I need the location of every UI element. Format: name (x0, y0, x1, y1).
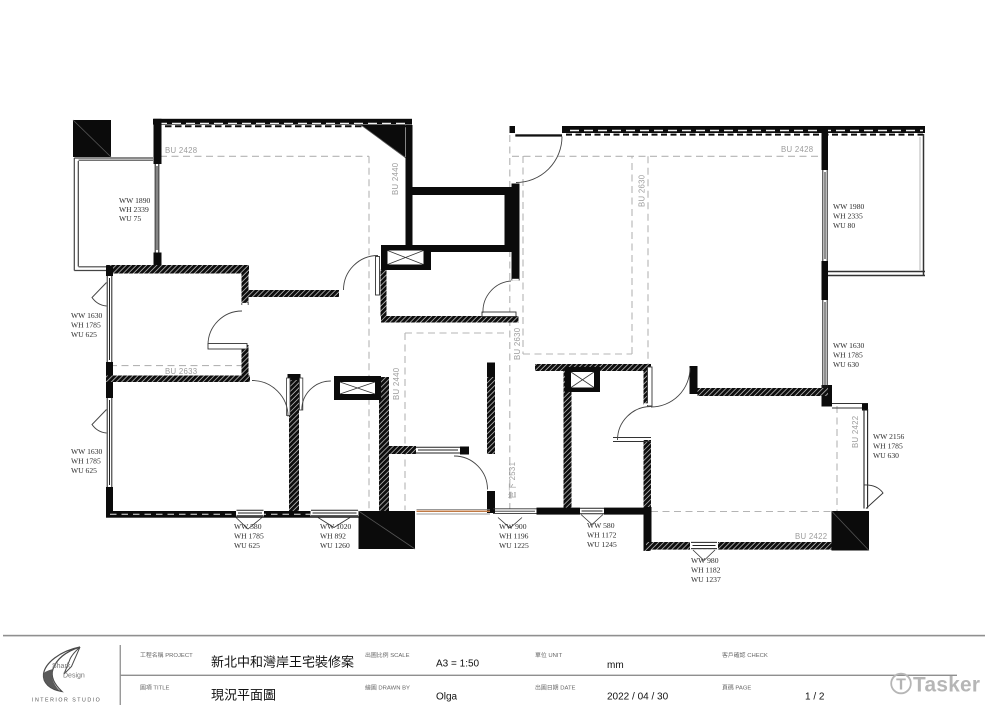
svg-text:單位 UNIT: 單位 UNIT (535, 651, 563, 659)
svg-text:WW 980: WW 980 (691, 556, 719, 565)
svg-text:1 / 2: 1 / 2 (805, 692, 825, 703)
svg-text:WU 75: WU 75 (119, 214, 141, 223)
svg-text:管下 2531: 管下 2531 (507, 462, 517, 499)
svg-text:BU 2422: BU 2422 (795, 532, 827, 541)
svg-text:現況平面圖: 現況平面圖 (211, 688, 276, 703)
svg-text:客戶確認 CHECK: 客戶確認 CHECK (722, 651, 768, 659)
svg-text:工程名稱 PROJECT: 工程名稱 PROJECT (140, 651, 193, 659)
svg-text:Olga: Olga (436, 692, 458, 703)
svg-text:BU 2630: BU 2630 (638, 174, 647, 207)
svg-text:WW 1630: WW 1630 (833, 341, 864, 350)
svg-text:WW 1630: WW 1630 (71, 311, 102, 320)
svg-text:BU 2422: BU 2422 (851, 416, 860, 448)
svg-text:WH 1785: WH 1785 (833, 351, 863, 360)
svg-text:WW 1630: WW 1630 (71, 447, 102, 456)
svg-text:WH 1785: WH 1785 (234, 532, 264, 541)
svg-text:mm: mm (607, 660, 624, 671)
svg-text:WU 80: WU 80 (833, 221, 855, 230)
svg-text:新北中和灣岸王宅裝修案: 新北中和灣岸王宅裝修案 (211, 655, 354, 670)
svg-text:WW 580: WW 580 (587, 521, 615, 530)
svg-text:BU 2440: BU 2440 (391, 162, 400, 195)
svg-text:WW 1020: WW 1020 (320, 522, 351, 531)
svg-text:WW 1980: WW 1980 (833, 202, 864, 211)
svg-text:WH 1785: WH 1785 (71, 321, 101, 330)
svg-text:頁碼 PAGE: 頁碼 PAGE (722, 685, 751, 692)
svg-text:Design: Design (63, 673, 85, 680)
svg-text:WH 892: WH 892 (320, 532, 346, 541)
svg-text:圖項 TITLE: 圖項 TITLE (140, 685, 170, 692)
svg-text:WH 1172: WH 1172 (587, 531, 617, 540)
svg-text:WU 625: WU 625 (234, 541, 260, 550)
svg-text:出圖日期 DATE: 出圖日期 DATE (535, 684, 576, 692)
svg-text:2022 / 04 / 30: 2022 / 04 / 30 (607, 692, 669, 703)
svg-text:WU 1237: WU 1237 (691, 575, 721, 584)
svg-text:WU 625: WU 625 (71, 466, 97, 475)
svg-text:繪圖 DRAWN BY: 繪圖 DRAWN BY (365, 684, 410, 692)
svg-text:Tasker: Tasker (913, 674, 980, 697)
svg-text:WW 580: WW 580 (234, 522, 262, 531)
svg-text:WH 1785: WH 1785 (873, 442, 903, 451)
svg-text:WU 1225: WU 1225 (499, 541, 529, 550)
svg-text:INTERIOR STUDIO: INTERIOR STUDIO (32, 698, 101, 704)
svg-text:WH 1196: WH 1196 (499, 532, 529, 541)
svg-text:WH 2335: WH 2335 (833, 212, 863, 221)
svg-text:WU 630: WU 630 (873, 451, 899, 460)
svg-text:WU 1260: WU 1260 (320, 541, 350, 550)
svg-text:T: T (896, 677, 906, 694)
svg-text:BU 2440: BU 2440 (392, 367, 401, 400)
svg-text:WU 625: WU 625 (71, 330, 97, 339)
svg-text:BU 2428: BU 2428 (781, 145, 813, 154)
svg-text:WH 1785: WH 1785 (71, 457, 101, 466)
svg-text:A3 = 1:50: A3 = 1:50 (436, 659, 480, 670)
svg-text:WU 1245: WU 1245 (587, 540, 617, 549)
svg-text:BU 2428: BU 2428 (165, 146, 197, 155)
svg-text:WW 900: WW 900 (499, 522, 527, 531)
svg-text:WW 2156: WW 2156 (873, 432, 904, 441)
svg-text:BU 2630: BU 2630 (513, 327, 522, 360)
svg-text:Shark: Shark (52, 663, 71, 670)
svg-text:BU 2633: BU 2633 (165, 367, 197, 376)
svg-text:WH 1182: WH 1182 (691, 566, 721, 575)
svg-text:WW 1890: WW 1890 (119, 196, 150, 205)
svg-text:出圖比例 SCALE: 出圖比例 SCALE (365, 651, 410, 659)
svg-text:WU 630: WU 630 (833, 360, 859, 369)
svg-text:WH 2339: WH 2339 (119, 205, 149, 214)
